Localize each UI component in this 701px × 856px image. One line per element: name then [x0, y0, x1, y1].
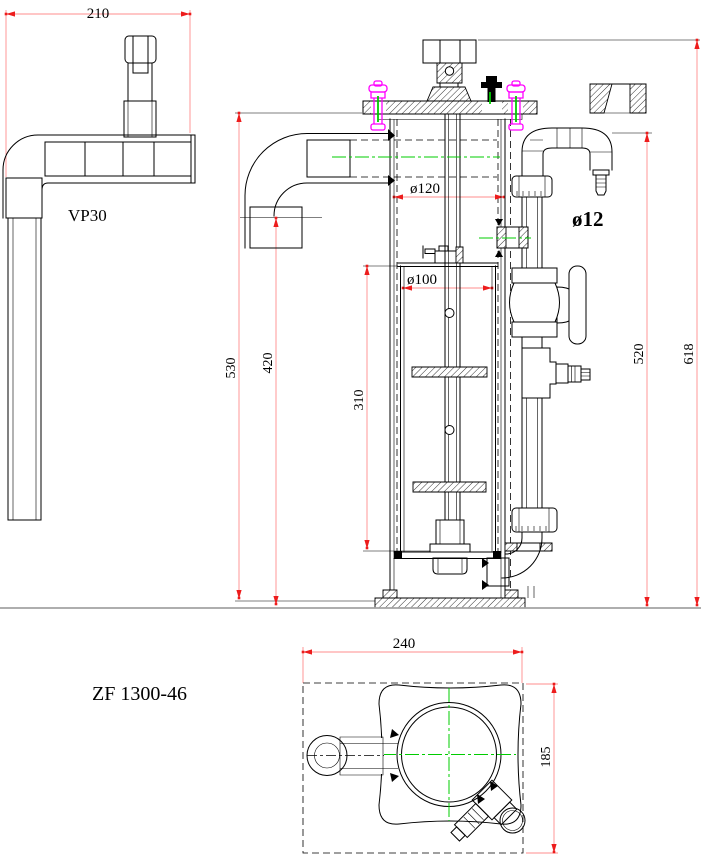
footprint-outline	[303, 683, 523, 853]
tee-fitting	[522, 348, 590, 398]
plan-centerlines	[382, 688, 516, 821]
bottom-fitting	[394, 520, 501, 574]
plan-inlet-pipe	[307, 729, 399, 782]
dim-185: 185	[526, 683, 558, 854]
dim-310: 310	[352, 265, 370, 550]
pipe-standard-label: VP30	[68, 206, 107, 225]
top-flange	[363, 84, 646, 120]
filter-cartridge	[398, 246, 498, 552]
cylinder-shell	[390, 114, 505, 598]
dim-420-label: 420	[261, 353, 276, 374]
dim-dia100-label: ø100	[407, 272, 437, 288]
dim-185-label: 185	[539, 747, 554, 768]
dim-dia120: ø120	[393, 181, 506, 200]
front-view: 530 420 310 520 618	[0, 39, 701, 608]
base	[375, 590, 525, 608]
inlet-elbow	[245, 129, 500, 248]
drawing-canvas: 210 VP30	[0, 0, 701, 856]
plan-view: 240 185	[302, 636, 558, 856]
dim-210-label: 210	[87, 6, 110, 22]
dim-240: 240	[302, 636, 524, 683]
dim-618-label: 618	[682, 344, 697, 365]
ball-valve[interactable]	[510, 266, 587, 344]
technical-drawing: 210 VP30	[0, 0, 701, 856]
dim-dia120-label: ø120	[410, 181, 440, 197]
dim-dia12-label: ø12	[572, 207, 604, 231]
detail-view-vp30: 210 VP30	[3, 6, 195, 520]
dim-520: 520	[632, 132, 650, 607]
dim-618: 618	[682, 39, 700, 607]
dim-310-label: 310	[352, 390, 367, 411]
dim-520-label: 520	[632, 344, 647, 365]
model-label: ZF 1300-46	[92, 683, 187, 705]
dim-530: 530	[224, 112, 242, 600]
dim-530-label: 530	[224, 358, 239, 379]
vent-knob[interactable]	[481, 76, 502, 104]
dim-dia100: ø100	[402, 272, 494, 291]
dim-240-label: 240	[393, 636, 416, 652]
dim-420: 420	[261, 217, 279, 606]
